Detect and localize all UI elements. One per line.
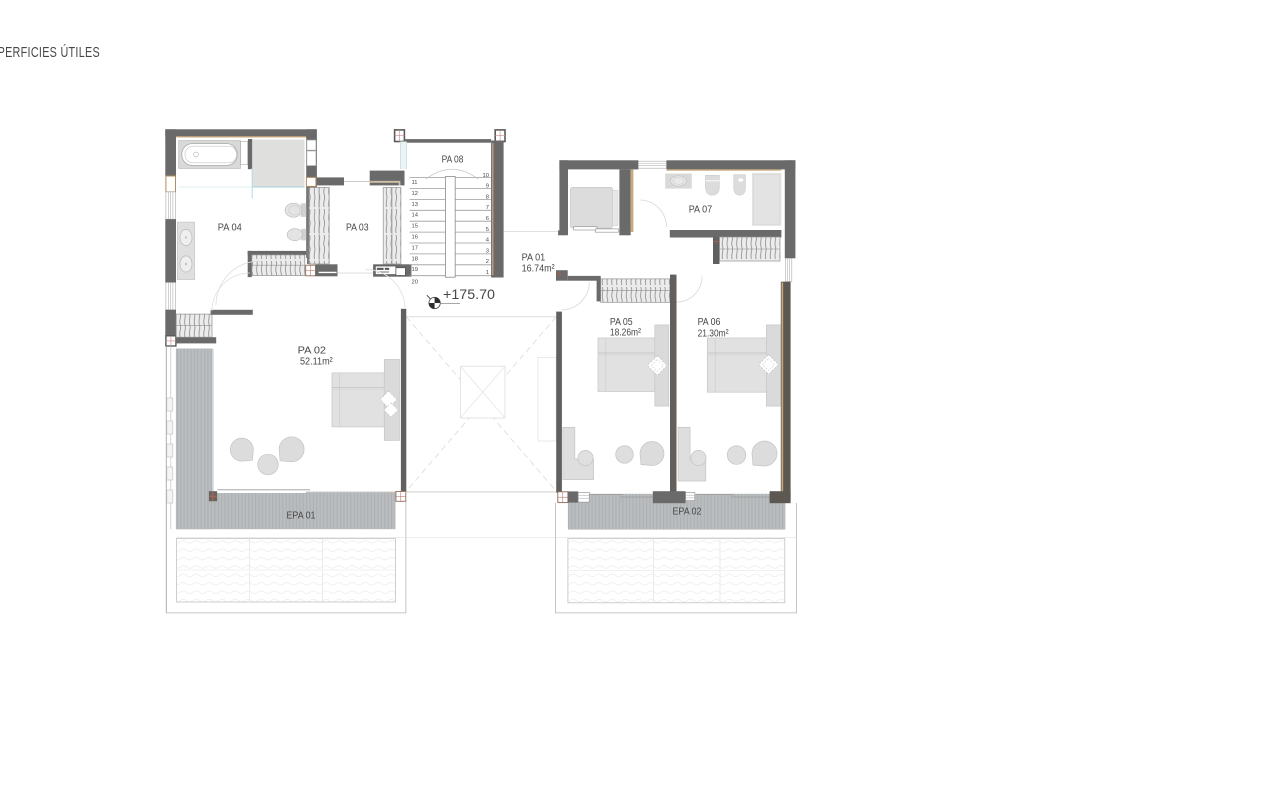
svg-text:1: 1 <box>486 270 489 276</box>
svg-text:15: 15 <box>412 224 418 230</box>
svg-text:18: 18 <box>412 256 418 262</box>
svg-text:7: 7 <box>486 205 489 211</box>
svg-text:PA 03: PA 03 <box>346 222 369 233</box>
svg-text:12: 12 <box>412 191 418 197</box>
svg-text:PA 01: PA 01 <box>522 253 546 264</box>
svg-text:18.26m²: 18.26m² <box>610 327 642 338</box>
svg-text:10: 10 <box>483 173 489 179</box>
svg-text:8: 8 <box>486 194 489 200</box>
svg-text:11: 11 <box>412 180 418 186</box>
svg-text:16.74m²: 16.74m² <box>522 263 556 274</box>
svg-text:13: 13 <box>412 202 418 208</box>
svg-text:EPA 02: EPA 02 <box>673 507 702 518</box>
svg-text:16: 16 <box>412 235 418 241</box>
svg-text:PA 02: PA 02 <box>298 345 327 356</box>
svg-text:3: 3 <box>486 248 489 254</box>
svg-text:19: 19 <box>412 267 418 273</box>
svg-text:21.30m²: 21.30m² <box>698 329 729 340</box>
svg-text:9: 9 <box>486 184 489 190</box>
svg-text:5: 5 <box>486 227 489 233</box>
svg-text:SUPERFICIES ÚTILES: SUPERFICIES ÚTILES <box>0 44 100 61</box>
svg-text:PA 06: PA 06 <box>698 317 721 328</box>
svg-text:EPA 01: EPA 01 <box>287 510 316 521</box>
svg-text:6: 6 <box>486 216 489 222</box>
svg-text:17: 17 <box>412 245 418 251</box>
svg-text:14: 14 <box>412 213 419 219</box>
svg-text:+175.70: +175.70 <box>443 286 495 302</box>
svg-text:2: 2 <box>486 259 489 265</box>
svg-text:PA 04: PA 04 <box>218 222 242 233</box>
svg-text:PA 08: PA 08 <box>442 155 464 166</box>
svg-text:20: 20 <box>412 280 418 286</box>
svg-text:52.11m²: 52.11m² <box>300 357 333 368</box>
svg-text:PA 07: PA 07 <box>689 204 713 215</box>
